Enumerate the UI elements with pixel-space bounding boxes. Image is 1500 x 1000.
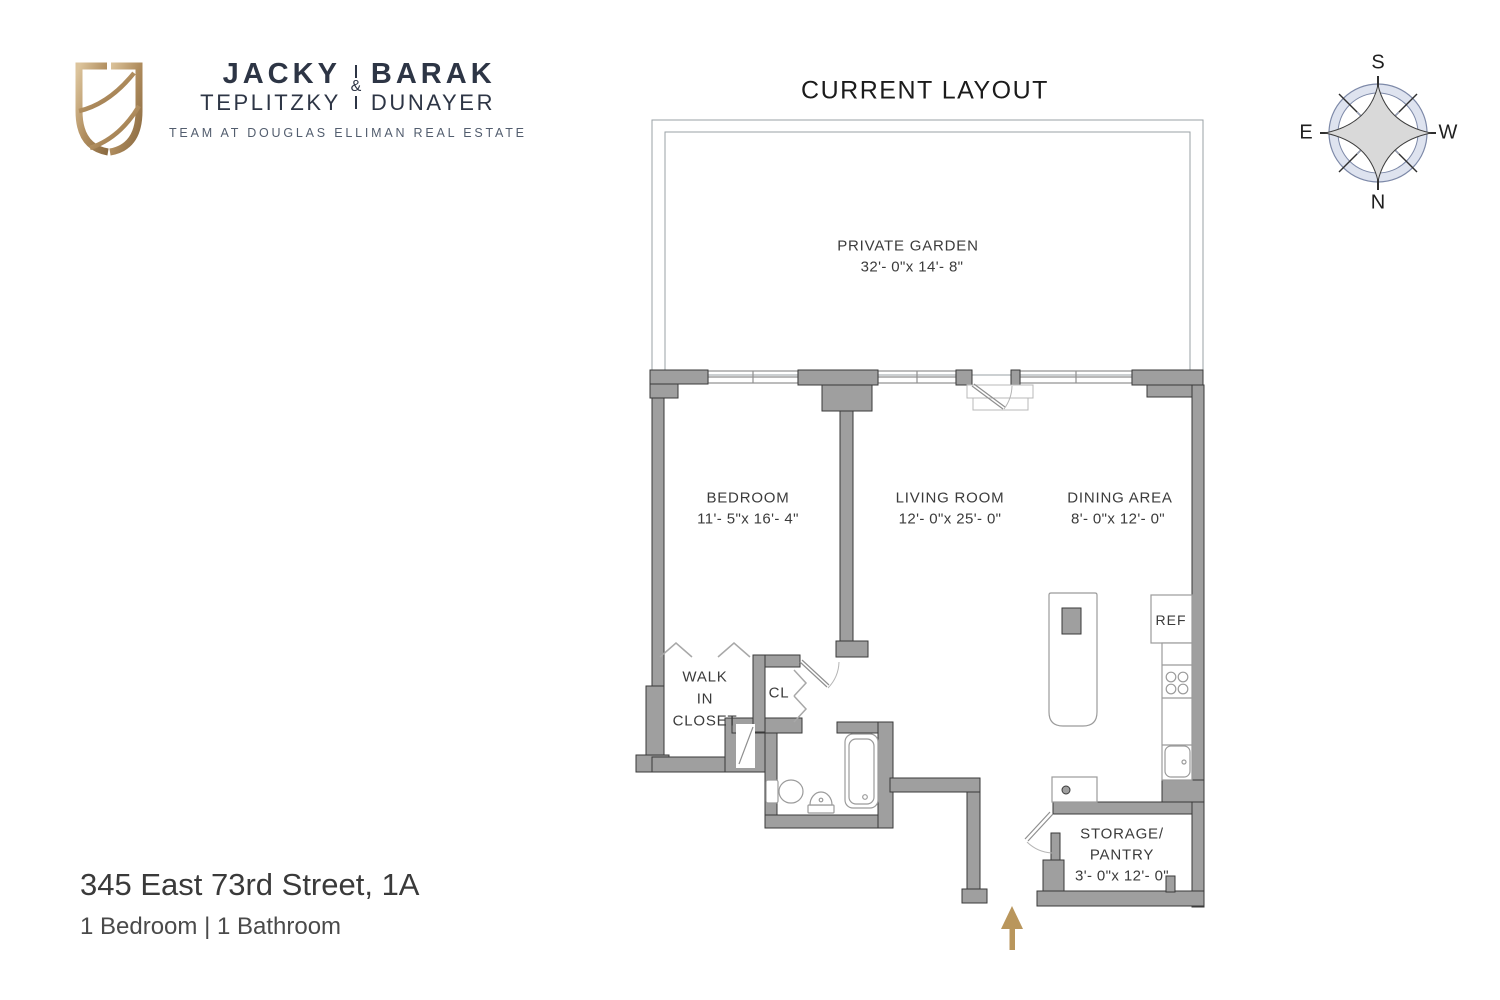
closet-label: CL [769, 685, 790, 702]
sink-icon [808, 792, 834, 813]
compass-east-label: E [1299, 122, 1312, 145]
compass-north-label: N [1371, 192, 1385, 215]
compass-south-label: S [1371, 52, 1384, 75]
walk-in-closet-label-3: CLOSET [673, 713, 738, 730]
kitchen-island [1049, 593, 1097, 726]
bedroom-label: BEDROOM [706, 490, 789, 507]
entry-arrow-icon [1001, 906, 1023, 950]
bathroom-fixtures [766, 734, 878, 813]
listing-address: 345 East 73rd Street, 1A [80, 867, 420, 903]
listing-summary: 1 Bedroom | 1 Bathroom [80, 913, 341, 941]
walk-in-closet-label-1: WALK [682, 669, 727, 686]
garden-dims: 32'- 0"x 14'- 8" [861, 259, 964, 276]
floorplan-flyer: JACKY BARAK TEPLITZKY DUNAYER & TEAM AT … [0, 0, 1500, 1000]
toilet-icon [766, 780, 803, 803]
bedroom-dims: 11'- 5"x 16'- 4" [697, 511, 799, 528]
kitchen-sink-icon [1165, 746, 1190, 777]
storage-dims: 3'- 0"x 12'- 0" [1075, 868, 1169, 885]
dishwasher-icon [1052, 777, 1097, 802]
dining-area-label: DINING AREA [1067, 490, 1173, 507]
compass-west-label: W [1439, 122, 1458, 145]
walk-in-closet-label-2: IN [697, 691, 714, 708]
living-room-dims: 12'- 0"x 25'- 0" [899, 511, 1002, 528]
storage-label-2: PANTRY [1090, 847, 1154, 864]
island-cooktop [1062, 608, 1081, 634]
garden-label: PRIVATE GARDEN [837, 238, 979, 255]
bathtub-icon [845, 734, 878, 808]
dining-area-dims: 8'- 0"x 12'- 0" [1071, 511, 1165, 528]
storage-label-1: STORAGE/ [1080, 826, 1164, 843]
living-room-label: LIVING ROOM [896, 490, 1005, 507]
refrigerator-label: REF [1156, 612, 1187, 628]
windows [708, 371, 1132, 383]
compass-rose-icon [1320, 76, 1436, 190]
